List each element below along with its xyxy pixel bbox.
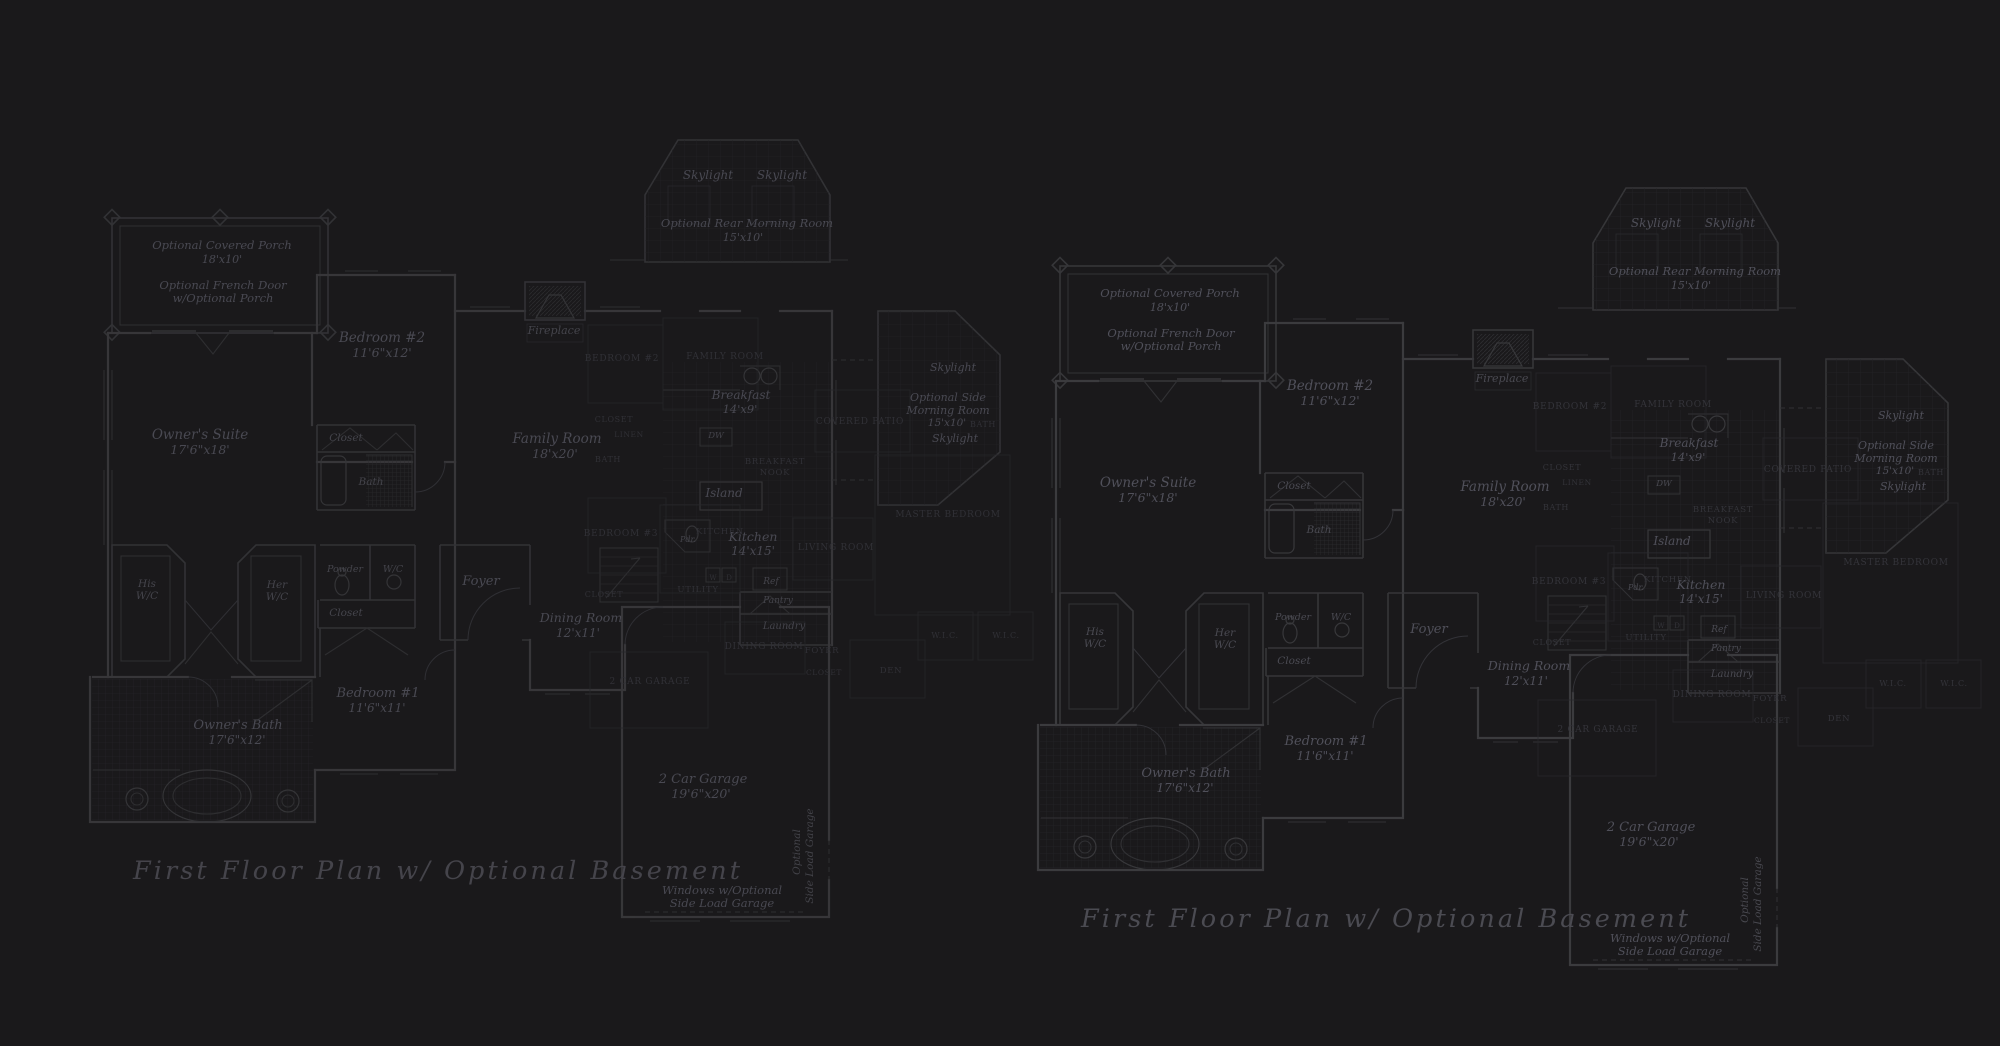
label-her-wc-1: Her xyxy=(266,579,288,591)
label-u-family-room: FAMILY ROOM xyxy=(686,352,764,362)
label-island: Island xyxy=(704,486,743,500)
label-laundry: Laundry xyxy=(1710,669,1754,680)
label-side-morning-2: Morning Room xyxy=(905,404,989,417)
label-bedroom2-dim: 11'6"x12' xyxy=(1300,393,1359,408)
label-closet-mid: Closet xyxy=(1277,655,1311,667)
label-side-skylight-2: Skylight xyxy=(1880,480,1927,493)
porch-outline xyxy=(1060,266,1276,381)
label-dining-name: Dining Room xyxy=(539,610,622,625)
label-owners-suite-dim: 17'6"x18' xyxy=(170,442,229,457)
label-u-breakfast: BREAKFAST xyxy=(1693,505,1753,515)
label-u-nook: NOOK xyxy=(760,468,790,478)
bath-tile-floor xyxy=(92,679,313,820)
label-laundry: Laundry xyxy=(762,621,806,632)
label-bath: Bath xyxy=(358,476,384,488)
label-u-garage: 2 CAR GARAGE xyxy=(1558,725,1639,735)
label-u-closet-1: CLOSET xyxy=(595,415,634,424)
label-u-closet-1: CLOSET xyxy=(1543,463,1582,472)
toilet xyxy=(335,575,349,595)
label-u-washer: W xyxy=(709,574,717,582)
label-family-room-dim: 18'x20' xyxy=(532,446,578,461)
label-bedroom2-name: Bedroom #2 xyxy=(1286,378,1373,394)
label-island: Island xyxy=(1652,534,1691,548)
label-porch-dim: 18'x10' xyxy=(1150,301,1190,314)
label-skylight-rear-2: Skylight xyxy=(1705,216,1755,230)
label-garage-dim: 19'6"x20' xyxy=(1619,834,1678,849)
label-owners-bath-dim: 17'6"x12' xyxy=(208,733,265,747)
label-bedroom2-name: Bedroom #2 xyxy=(338,330,425,346)
label-family-room-name: Family Room xyxy=(1459,479,1549,495)
label-u-wic-1: W.I.C. xyxy=(1879,679,1906,688)
label-sideload-vert-2: Side Load Garage xyxy=(1752,856,1764,951)
sink xyxy=(1335,623,1349,637)
label-owners-bath-name: Owner's Bath xyxy=(1141,766,1230,781)
label-u-bedroom3: BEDROOM #3 xyxy=(1532,577,1606,587)
label-u-master-bedroom: MASTER BEDROOM xyxy=(1843,558,1948,568)
label-u-master-bedroom: MASTER BEDROOM xyxy=(895,510,1000,520)
label-kitchen-dim: 14'x15' xyxy=(731,544,775,558)
label-breakfast-dim: 14'x9' xyxy=(1671,450,1706,464)
his-wc-outline xyxy=(1060,593,1133,725)
floor-plans: Optional Covered Porch18'x10'Optional Fr… xyxy=(90,140,1981,969)
label-u-bedroom2: BEDROOM #2 xyxy=(1533,402,1607,412)
label-pdr: Pdr. xyxy=(1627,583,1644,592)
label-pdr: Pdr. xyxy=(679,535,696,544)
label-u-kitchen: KITCHEN xyxy=(1644,575,1692,585)
label-sideload-vert-1: Optional xyxy=(791,829,803,875)
label-his-wc-2: W/C xyxy=(1084,638,1106,650)
label-u-linen: LINEN xyxy=(1562,478,1592,487)
label-u-kitchen: KITCHEN xyxy=(696,527,744,537)
label-skylight-rear-1: Skylight xyxy=(683,168,733,182)
label-u-covered-patio: COVERED PATIO xyxy=(816,417,904,427)
label-bath: Bath xyxy=(1306,524,1332,536)
toilet xyxy=(1283,623,1297,643)
label-u-dryer: D xyxy=(1674,622,1680,630)
label-breakfast-dim: 14'x9' xyxy=(723,402,758,416)
label-foyer: Foyer xyxy=(1409,622,1448,637)
label-bedroom1-name: Bedroom #1 xyxy=(1283,734,1367,749)
label-u-covered-patio: COVERED PATIO xyxy=(1764,465,1852,475)
label-his-wc-2: W/C xyxy=(136,590,158,602)
label-u-bath-2: BATH xyxy=(1918,468,1944,477)
label-garage-name: 2 Car Garage xyxy=(1606,820,1696,835)
label-bedroom1-dim: 11'6"x11' xyxy=(348,701,405,715)
label-rear-morning-dim: 15'x10' xyxy=(1671,279,1711,292)
label-porch-dim: 18'x10' xyxy=(202,253,242,266)
label-u-living-room: LIVING ROOM xyxy=(798,543,874,553)
label-u-dryer: D xyxy=(726,574,732,582)
label-u-linen: LINEN xyxy=(614,430,644,439)
label-bedroom2-dim: 11'6"x12' xyxy=(352,345,411,360)
label-u-utility: UTILITY xyxy=(677,585,718,595)
label-owners-bath-name: Owner's Bath xyxy=(193,718,282,733)
label-family-room-name: Family Room xyxy=(511,431,601,447)
porch-outline xyxy=(112,218,328,333)
label-u-washer: W xyxy=(1657,622,1665,630)
label-skylight-rear-1: Skylight xyxy=(1631,216,1681,230)
page-background: Optional Covered Porch18'x10'Optional Fr… xyxy=(0,0,2000,1046)
label-u-foyer: FOYER xyxy=(805,646,839,656)
porch-corner-diamonds xyxy=(104,210,336,341)
label-side-morning-1: Optional Side xyxy=(910,391,986,404)
label-ref: Ref xyxy=(762,577,780,587)
label-garage-name: 2 Car Garage xyxy=(658,772,748,787)
label-dining-dim: 12'x11' xyxy=(556,626,600,640)
her-wc-outline xyxy=(1186,593,1263,725)
label-rear-morning-name: Optional Rear Morning Room xyxy=(661,216,833,230)
her-wc-outline xyxy=(238,545,315,677)
label-windows-note-2: Side Load Garage xyxy=(670,896,775,910)
label-owners-bath-dim: 17'6"x12' xyxy=(1156,781,1213,795)
label-closet-mid: Closet xyxy=(329,607,363,619)
label-powder: Powder xyxy=(326,564,365,575)
label-u-closet-3: CLOSET xyxy=(806,668,842,677)
bathtub xyxy=(321,456,346,505)
label-side-skylight-2: Skylight xyxy=(932,432,979,445)
label-porch-name: Optional Covered Porch xyxy=(1100,286,1240,300)
label-rear-morning-name: Optional Rear Morning Room xyxy=(1609,264,1781,278)
label-u-den: DEN xyxy=(880,666,903,676)
label-plan-title: First Floor Plan w/ Optional Basement xyxy=(132,856,743,886)
label-side-skylight-1: Skylight xyxy=(1878,409,1925,422)
label-his-wc-1: His xyxy=(1085,626,1105,638)
label-dining-name: Dining Room xyxy=(1487,658,1570,673)
label-u-dining: DINING ROOM xyxy=(1673,690,1752,700)
label-dw: DW xyxy=(1655,479,1673,489)
label-porch-name: Optional Covered Porch xyxy=(152,238,292,252)
label-his-wc-1: His xyxy=(137,578,157,590)
bathtub xyxy=(1269,504,1294,553)
label-u-closet-2: CLOSET xyxy=(1533,638,1572,647)
label-u-breakfast: BREAKFAST xyxy=(745,457,805,467)
label-foyer: Foyer xyxy=(461,574,500,589)
label-frenchdoor-2: w/Optional Porch xyxy=(1121,339,1222,353)
label-sideload-vert-1: Optional xyxy=(1739,877,1751,923)
label-garage-dim: 19'6"x20' xyxy=(671,786,730,801)
label-dining-dim: 12'x11' xyxy=(1504,674,1548,688)
floor-plan-canvas: Optional Covered Porch18'x10'Optional Fr… xyxy=(0,0,2000,1046)
label-owners-suite-dim: 17'6"x18' xyxy=(1118,490,1177,505)
label-side-morning-dim: 15'x10' xyxy=(928,417,966,429)
label-u-bedroom2: BEDROOM #2 xyxy=(585,354,659,364)
bath-tile-floor xyxy=(1040,727,1261,868)
porch-corner-diamonds xyxy=(1052,258,1284,389)
label-rear-morning-dim: 15'x10' xyxy=(723,231,763,244)
label-her-wc-2: W/C xyxy=(266,591,288,603)
label-her-wc-1: Her xyxy=(1214,627,1236,639)
sink xyxy=(387,575,401,589)
label-pantry: Pantry xyxy=(1710,644,1742,654)
label-u-dining: DINING ROOM xyxy=(725,642,804,652)
label-side-skylight-1: Skylight xyxy=(930,361,977,374)
label-bedroom1-name: Bedroom #1 xyxy=(335,686,419,701)
label-u-wic-2: W.I.C. xyxy=(1940,679,1967,688)
label-plan-title: First Floor Plan w/ Optional Basement xyxy=(1080,904,1691,934)
label-u-den: DEN xyxy=(1828,714,1851,724)
label-closet-upper: Closet xyxy=(329,432,363,444)
label-windows-note-2: Side Load Garage xyxy=(1618,944,1723,958)
label-kitchen-dim: 14'x15' xyxy=(1679,592,1723,606)
label-closet-upper: Closet xyxy=(1277,480,1311,492)
label-wc: W/C xyxy=(383,564,404,575)
label-frenchdoor-1: Optional French Door xyxy=(1107,326,1236,340)
label-u-living-room: LIVING ROOM xyxy=(1746,591,1822,601)
label-u-nook: NOOK xyxy=(1708,516,1738,526)
label-frenchdoor-2: w/Optional Porch xyxy=(173,291,274,305)
label-u-closet-2: CLOSET xyxy=(585,590,624,599)
label-bedroom1-dim: 11'6"x11' xyxy=(1296,749,1353,763)
label-wc: W/C xyxy=(1331,612,1352,623)
label-breakfast-name: Breakfast xyxy=(1659,436,1719,450)
label-owners-suite-name: Owner's Suite xyxy=(1100,475,1196,491)
label-u-bedroom3: BEDROOM #3 xyxy=(584,529,658,539)
plan-right: Optional Covered Porch18'x10'Optional Fr… xyxy=(1038,188,1981,969)
label-family-room-dim: 18'x20' xyxy=(1480,494,1526,509)
plan-left: Optional Covered Porch18'x10'Optional Fr… xyxy=(90,140,1033,921)
label-ref: Ref xyxy=(1710,625,1728,635)
label-u-family-room: FAMILY ROOM xyxy=(1634,400,1712,410)
label-side-morning-1: Optional Side xyxy=(1858,439,1934,452)
label-side-morning-dim: 15'x10' xyxy=(1876,465,1914,477)
label-frenchdoor-1: Optional French Door xyxy=(159,278,288,292)
label-fireplace: Fireplace xyxy=(527,324,581,337)
label-u-wic-2: W.I.C. xyxy=(992,631,1019,640)
label-u-bath-1: BATH xyxy=(1543,503,1569,512)
label-u-foyer: FOYER xyxy=(1753,694,1787,704)
label-u-closet-3: CLOSET xyxy=(1754,716,1790,725)
label-side-morning-2: Morning Room xyxy=(1853,452,1937,465)
label-fireplace: Fireplace xyxy=(1475,372,1529,385)
label-sideload-vert-2: Side Load Garage xyxy=(804,808,816,903)
label-u-wic-1: W.I.C. xyxy=(931,631,958,640)
label-u-bath-1: BATH xyxy=(595,455,621,464)
label-u-utility: UTILITY xyxy=(1625,633,1666,643)
label-u-bath-2: BATH xyxy=(970,420,996,429)
label-u-garage: 2 CAR GARAGE xyxy=(610,677,691,687)
his-wc-outline xyxy=(112,545,185,677)
label-skylight-rear-2: Skylight xyxy=(757,168,807,182)
label-breakfast-name: Breakfast xyxy=(711,388,771,402)
label-her-wc-2: W/C xyxy=(1214,639,1236,651)
label-owners-suite-name: Owner's Suite xyxy=(152,427,248,443)
label-dw: DW xyxy=(707,431,725,441)
label-pantry: Pantry xyxy=(762,596,794,606)
label-powder: Powder xyxy=(1274,612,1313,623)
